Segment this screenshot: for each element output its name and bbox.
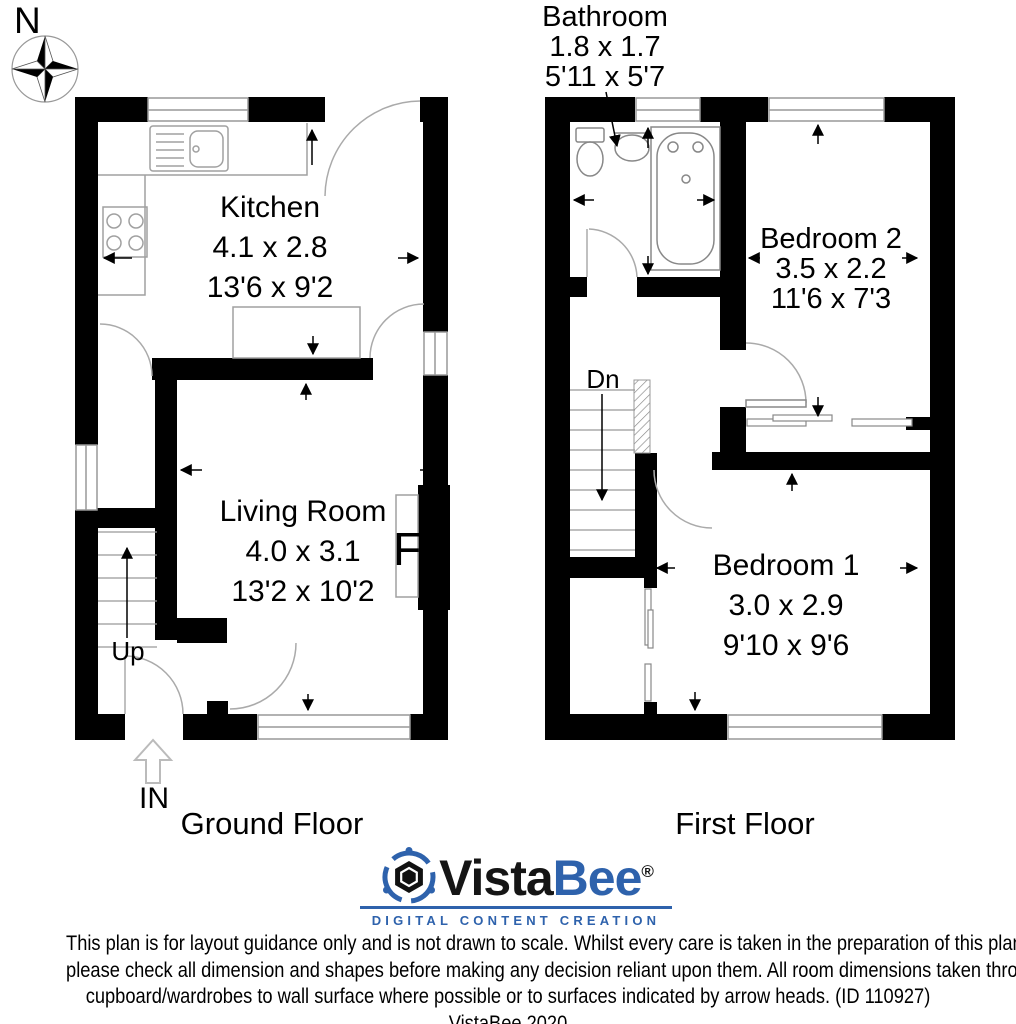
bathroom-label: Bathroom 1.8 x 1.7 5'11 x 5'7 — [542, 2, 668, 92]
logo-bee-text: Bee — [553, 850, 642, 906]
disclaimer-line: This plan is for layout guidance only an… — [66, 931, 950, 958]
toilet — [576, 128, 604, 176]
basin — [614, 133, 652, 161]
logo-wordmark: VistaBee® — [439, 842, 653, 908]
room-name: Bedroom 2 — [760, 224, 902, 254]
room-dim-imperial: 13'6 x 9'2 — [207, 268, 334, 308]
room-name: Bathroom — [542, 2, 668, 32]
disclaimer-line: please check all dimension and shapes be… — [66, 958, 950, 985]
first-floor-title: First Floor — [675, 806, 815, 842]
vistabee-hexagon-icon — [379, 845, 439, 905]
room-dim-metric: 4.0 x 3.1 — [220, 532, 387, 572]
entrance-arrow-icon — [135, 740, 171, 783]
kitchen-sink — [150, 126, 228, 171]
floorplan-page: N Bathroom 1.8 x 1.7 5'11 x 5'7 Kitchen … — [0, 0, 1016, 1024]
bathroom-fixtures — [576, 127, 720, 270]
disclaimer-text: This plan is for layout guidance only an… — [66, 931, 950, 1024]
kitchen-hob — [103, 207, 147, 257]
room-dim-imperial: 13'2 x 10'2 — [220, 572, 387, 612]
living-room-label: Living Room 4.0 x 3.1 13'2 x 10'2 — [220, 492, 387, 612]
room-name: Bedroom 1 — [713, 546, 860, 586]
room-dim-imperial: 9'10 x 9'6 — [713, 626, 860, 666]
room-dim-metric: 3.0 x 2.9 — [713, 586, 860, 626]
ground-floor-title: Ground Floor — [181, 806, 364, 842]
room-dim-metric: 3.5 x 2.2 — [760, 254, 902, 284]
registered-mark: ® — [641, 862, 653, 881]
compass-rose-icon — [12, 36, 78, 102]
vistabee-logo: VistaBee® DIGITAL CONTENT CREATION — [360, 844, 672, 928]
kitchen-label: Kitchen 4.1 x 2.8 13'6 x 9'2 — [207, 188, 334, 308]
room-dim-imperial: 11'6 x 7'3 — [760, 284, 902, 314]
room-name: Kitchen — [207, 188, 334, 228]
entrance-label: IN — [139, 782, 169, 816]
kitchen-table — [233, 307, 360, 358]
room-dim-imperial: 5'11 x 5'7 — [542, 62, 668, 92]
room-name: Living Room — [220, 492, 387, 532]
bedroom2-label: Bedroom 2 3.5 x 2.2 11'6 x 7'3 — [760, 224, 902, 314]
compass-north-label: N — [14, 0, 41, 42]
stairs-up-label: Up — [111, 636, 144, 667]
fireplace-label: F — [393, 522, 421, 576]
logo-tagline: DIGITAL CONTENT CREATION — [360, 913, 672, 928]
logo-vista-text: Vista — [439, 850, 553, 906]
stairs-down-label: Dn — [586, 364, 619, 395]
room-dim-metric: 4.1 x 2.8 — [207, 228, 334, 268]
room-dim-metric: 1.8 x 1.7 — [542, 32, 668, 62]
disclaimer-line: cupboard/wardrobes to wall surface where… — [66, 984, 950, 1011]
chimney-breast — [418, 485, 450, 610]
copyright-line: VistaBee 2020 — [66, 1011, 950, 1024]
bathtub — [651, 127, 720, 270]
stair-void-hatch — [634, 380, 650, 453]
bedroom1-label: Bedroom 1 3.0 x 2.9 9'10 x 9'6 — [713, 546, 860, 666]
